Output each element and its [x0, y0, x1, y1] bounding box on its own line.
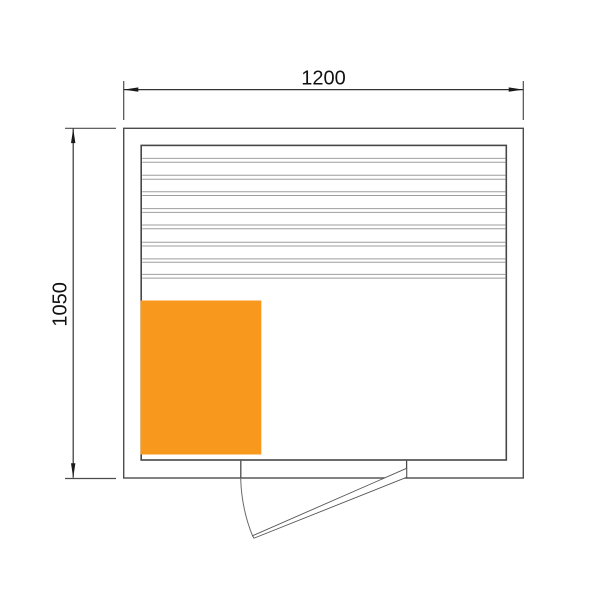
- svg-text:1200: 1200: [301, 68, 346, 90]
- svg-text:1050: 1050: [50, 282, 72, 327]
